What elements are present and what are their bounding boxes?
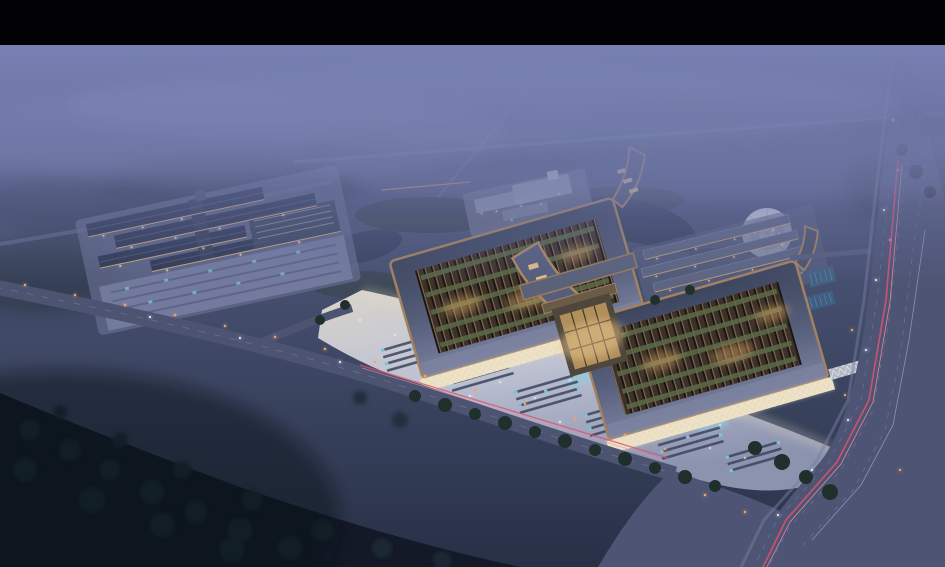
- screenshot-root: [0, 0, 945, 567]
- aerial-rendering: [0, 0, 945, 567]
- letterbox-bar: [0, 0, 945, 45]
- color-wash: [0, 40, 945, 567]
